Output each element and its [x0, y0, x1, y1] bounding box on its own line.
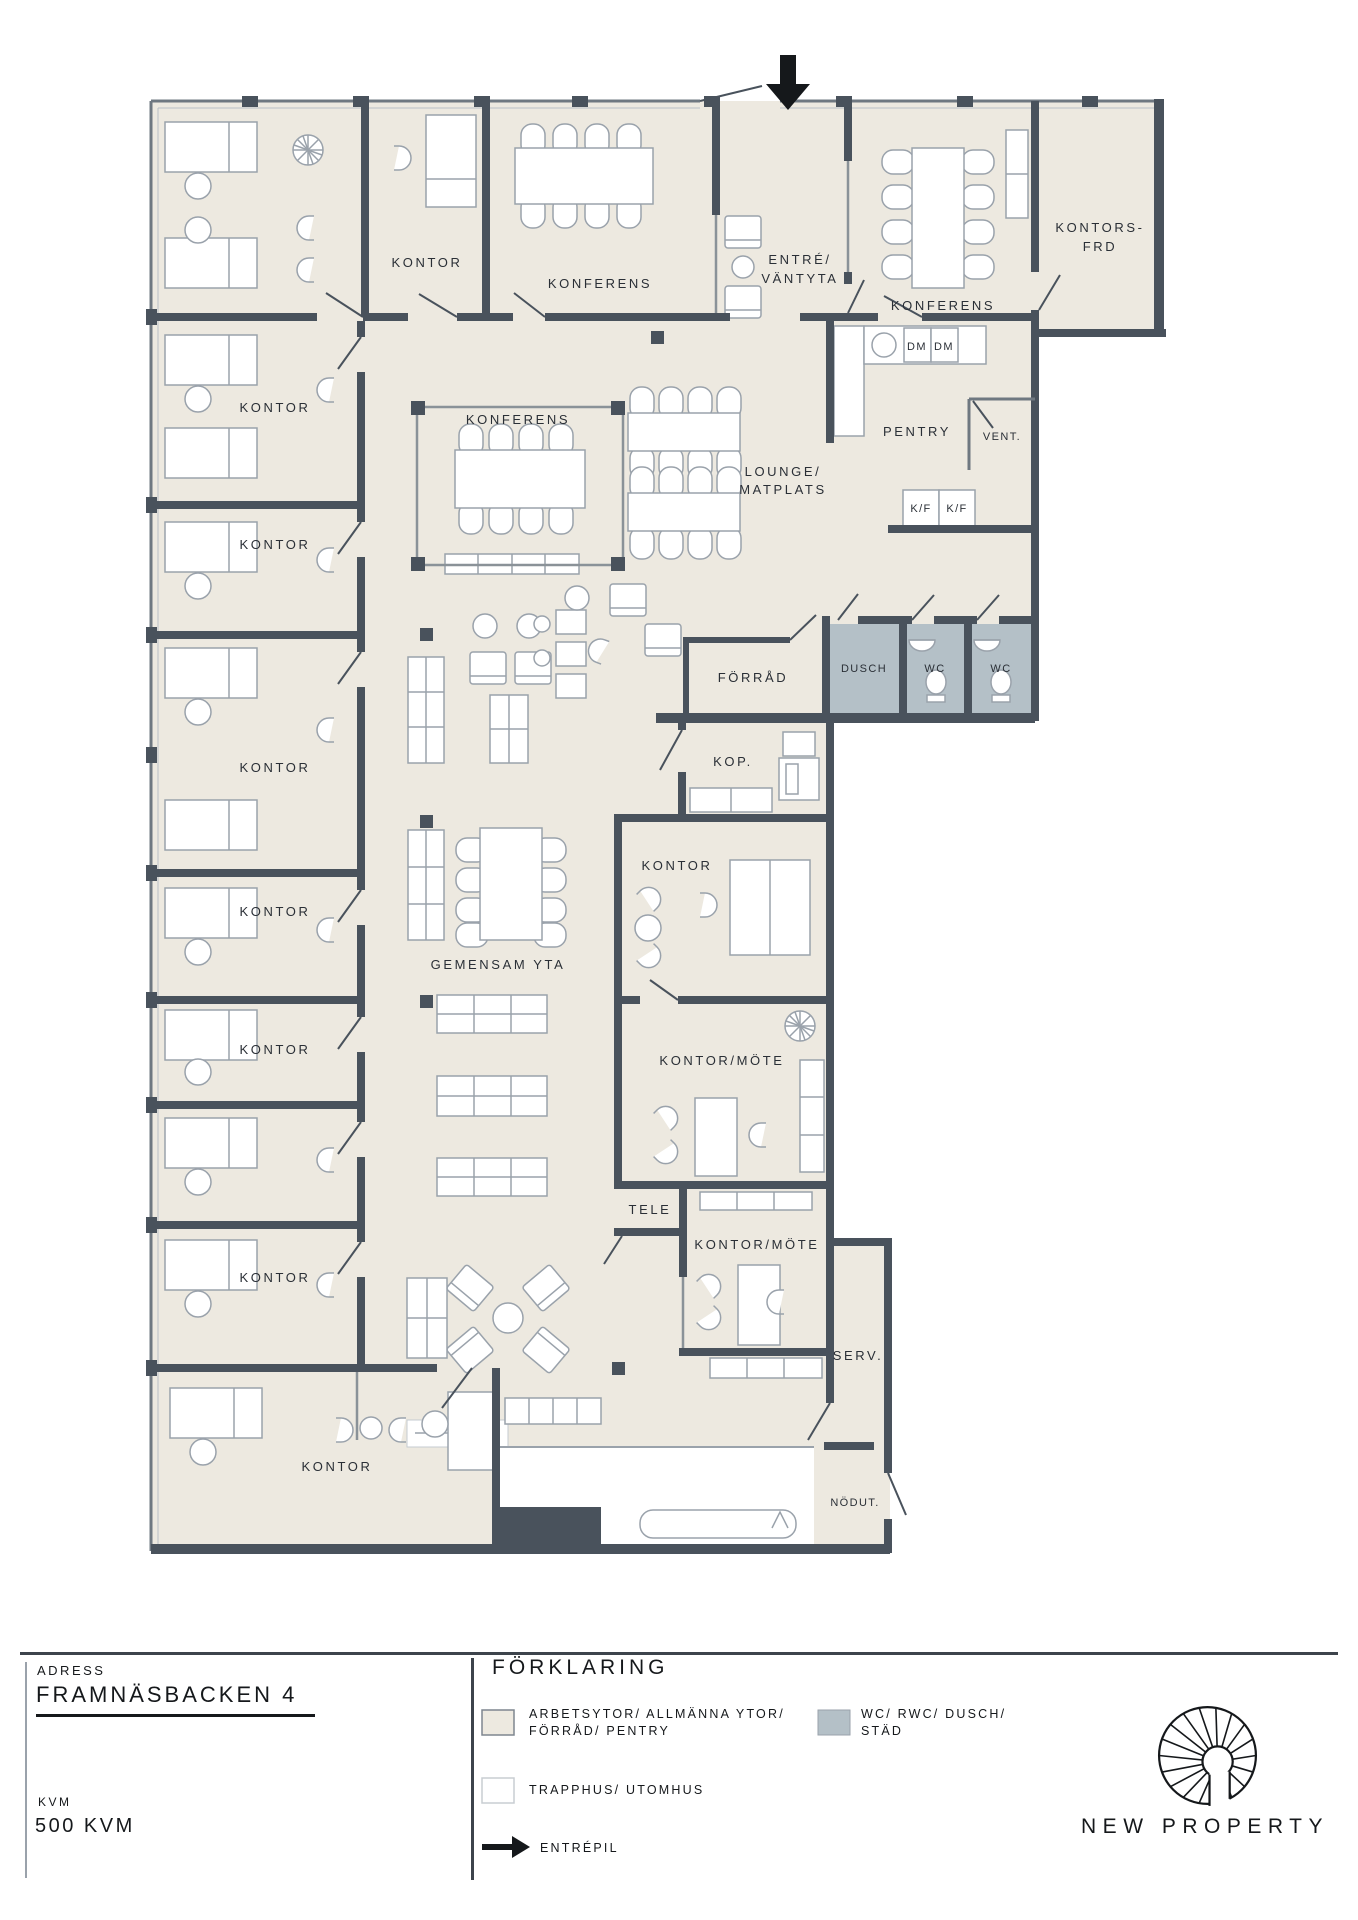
room-label-entre-1: ENTRÉ/ [768, 252, 831, 267]
spiral-staircase-logo [1150, 1698, 1265, 1813]
legend-item-wet: WC/ RWC/ DUSCH/ STÄD [861, 1706, 1006, 1740]
room-label-pentry: PENTRY [883, 424, 951, 439]
label-dm: DM [934, 341, 954, 353]
address-value: FRAMNÄSBACKEN 4 [36, 1682, 315, 1717]
legend-text: WC/ RWC/ DUSCH/ [861, 1706, 1006, 1723]
room-label-kontor: KONTOR [240, 760, 311, 775]
kvm-value: 500 KVM [35, 1815, 135, 1838]
legend-item-stairs: TRAPPHUS/ UTOMHUS [529, 1782, 704, 1799]
floor-plan: KONTOR KONFERENS ENTRÉ/ VÄNTYTA KONFEREN… [0, 0, 1358, 1650]
footer-left-border [25, 1662, 27, 1878]
room-label-kop: KOP. [713, 754, 753, 769]
room-label-kontorsfrd-1: KONTORS- [1055, 220, 1144, 235]
legend-swatch-stairs [481, 1777, 515, 1804]
room-label-kontor: KONTOR [302, 1459, 373, 1474]
plant-icon [293, 135, 323, 165]
legend-text: TRAPPHUS/ UTOMHUS [529, 1782, 704, 1799]
room-label-dusch: DUSCH [841, 663, 887, 675]
room-label-kontorsfrd-2: FRD [1083, 239, 1118, 254]
legend-title: FÖRKLARING [492, 1656, 669, 1680]
kvm-label: KVM [38, 1795, 72, 1809]
room-label-serv: SERV. [833, 1348, 884, 1363]
legend-text: ENTRÉPIL [540, 1840, 619, 1857]
label-dm: DM [907, 341, 927, 353]
room-label-konferens: KONFERENS [548, 276, 652, 291]
address-label: ADRESS [37, 1663, 105, 1678]
legend-item-workspace: ARBETSYTOR/ ALLMÄNNA YTOR/ FÖRRÅD/ PENTR… [529, 1706, 785, 1740]
room-label-kontor-mote: KONTOR/MÖTE [659, 1053, 784, 1068]
room-label-kontor: KONTOR [240, 400, 311, 415]
room-label-kontor-mote: KONTOR/MÖTE [694, 1237, 819, 1252]
room-label-konferens: KONFERENS [466, 412, 570, 427]
room-label-lounge-1: LOUNGE/ [745, 464, 822, 479]
room-label-tele: TELE [629, 1202, 672, 1217]
room-label-wc: WC [924, 663, 945, 675]
room-label-kontor: KONTOR [240, 1042, 311, 1057]
legend-text: ARBETSYTOR/ ALLMÄNNA YTOR/ [529, 1706, 785, 1723]
room-label-entre-2: VÄNTYTA [761, 271, 838, 286]
room-label-kontor: KONTOR [392, 255, 463, 270]
room-label-kontor: KONTOR [240, 1270, 311, 1285]
room-label-wc: WC [990, 663, 1011, 675]
room-label-kontor: KONTOR [240, 537, 311, 552]
label-kf: K/F [946, 503, 967, 515]
legend-entrance-arrow-icon [482, 1836, 532, 1858]
room-label-kontor: KONTOR [240, 904, 311, 919]
label-kf: K/F [910, 503, 931, 515]
room-label-lounge-2: MATPLATS [739, 482, 827, 497]
floor-plan-svg: KONTOR KONFERENS ENTRÉ/ VÄNTYTA KONFEREN… [0, 0, 1358, 1650]
legend-swatch-workspace [481, 1709, 515, 1736]
room-label-gemensam-yta: GEMENSAM YTA [431, 957, 566, 972]
room-label-nodut: NÖDUT. [830, 1497, 879, 1509]
room-label-konferens: KONFERENS [891, 298, 995, 313]
room-label-forrad: FÖRRÅD [718, 670, 789, 685]
legend-item-entrance: ENTRÉPIL [540, 1840, 619, 1857]
brand-name: NEW PROPERTY [1050, 1815, 1358, 1839]
room-label-vent: VENT. [983, 431, 1021, 443]
legend-swatch-wet [817, 1709, 851, 1736]
legend-text: FÖRRÅD/ PENTRY [529, 1723, 785, 1740]
footer-middle-border [471, 1658, 474, 1880]
legend-text: STÄD [861, 1723, 1006, 1740]
room-label-kontor: KONTOR [642, 858, 713, 873]
footer-divider [20, 1652, 1338, 1655]
plant-icon [785, 1011, 815, 1041]
